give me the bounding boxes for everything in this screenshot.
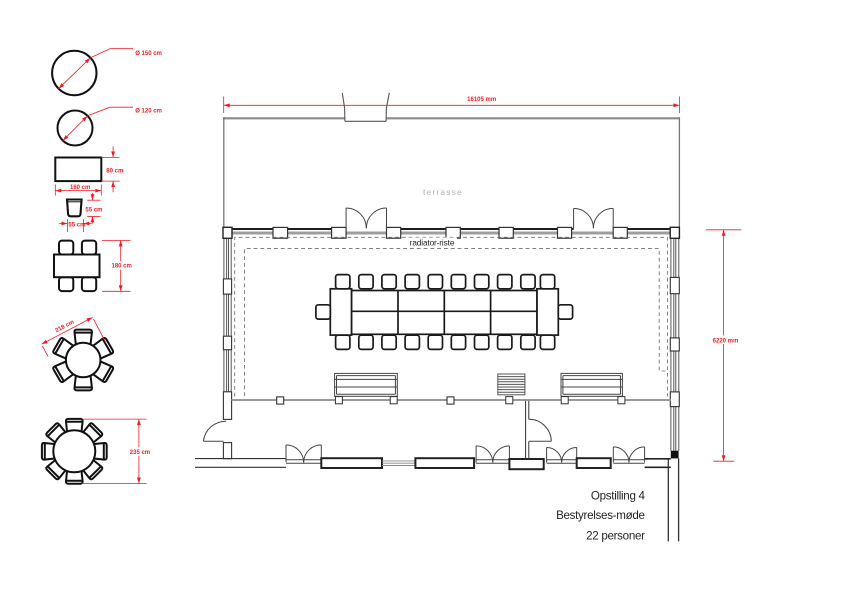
svg-text:Ø 120 cm: Ø 120 cm — [135, 109, 162, 115]
svg-text:160 cm: 160 cm — [70, 185, 90, 191]
svg-text:16105 mm: 16105 mm — [467, 97, 496, 103]
svg-text:Ø 150 cm: Ø 150 cm — [135, 51, 162, 57]
svg-text:235 cm: 235 cm — [130, 450, 150, 456]
svg-text:55 cm: 55 cm — [68, 222, 85, 228]
svg-text:radiator-riste: radiator-riste — [410, 238, 455, 247]
svg-text:Bestyrelses-møde: Bestyrelses-møde — [556, 509, 645, 522]
svg-text:6220 mm: 6220 mm — [713, 338, 739, 344]
svg-text:80 cm: 80 cm — [106, 168, 123, 174]
svg-text:180 cm: 180 cm — [112, 264, 132, 270]
svg-text:terrasse: terrasse — [423, 187, 463, 197]
svg-text:Opstilling 4: Opstilling 4 — [591, 490, 646, 503]
svg-text:55 cm: 55 cm — [85, 208, 102, 214]
svg-text:22 personer: 22 personer — [586, 529, 645, 542]
